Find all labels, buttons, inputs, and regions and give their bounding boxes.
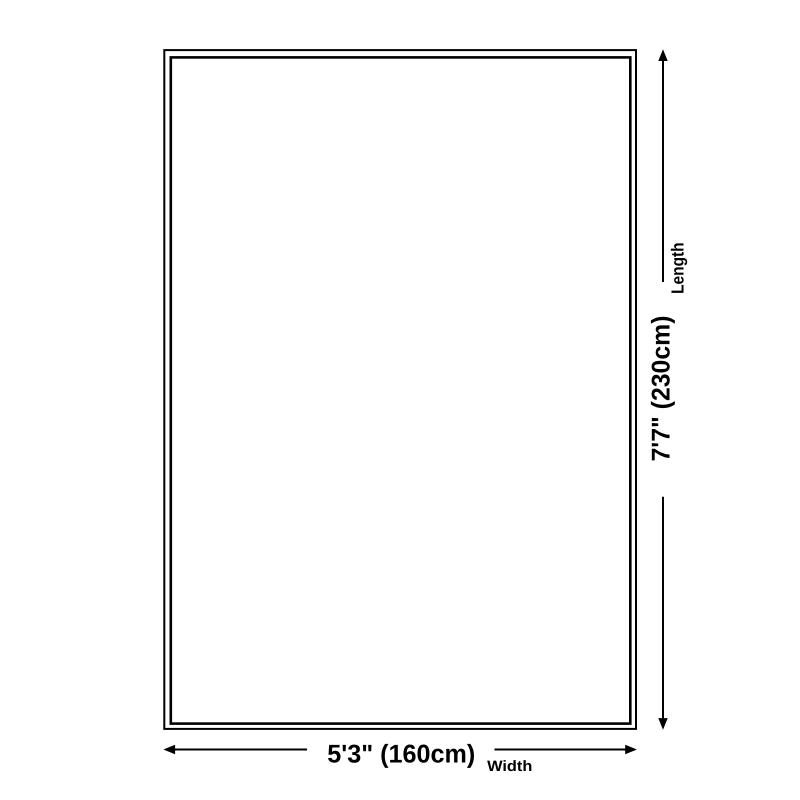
svg-text:7'7" (230cm): 7'7" (230cm) — [647, 316, 675, 462]
svg-text:5'3" (160cm): 5'3" (160cm) — [327, 740, 475, 768]
svg-text:Width: Width — [487, 758, 532, 775]
svg-text:Length: Length — [667, 242, 687, 294]
